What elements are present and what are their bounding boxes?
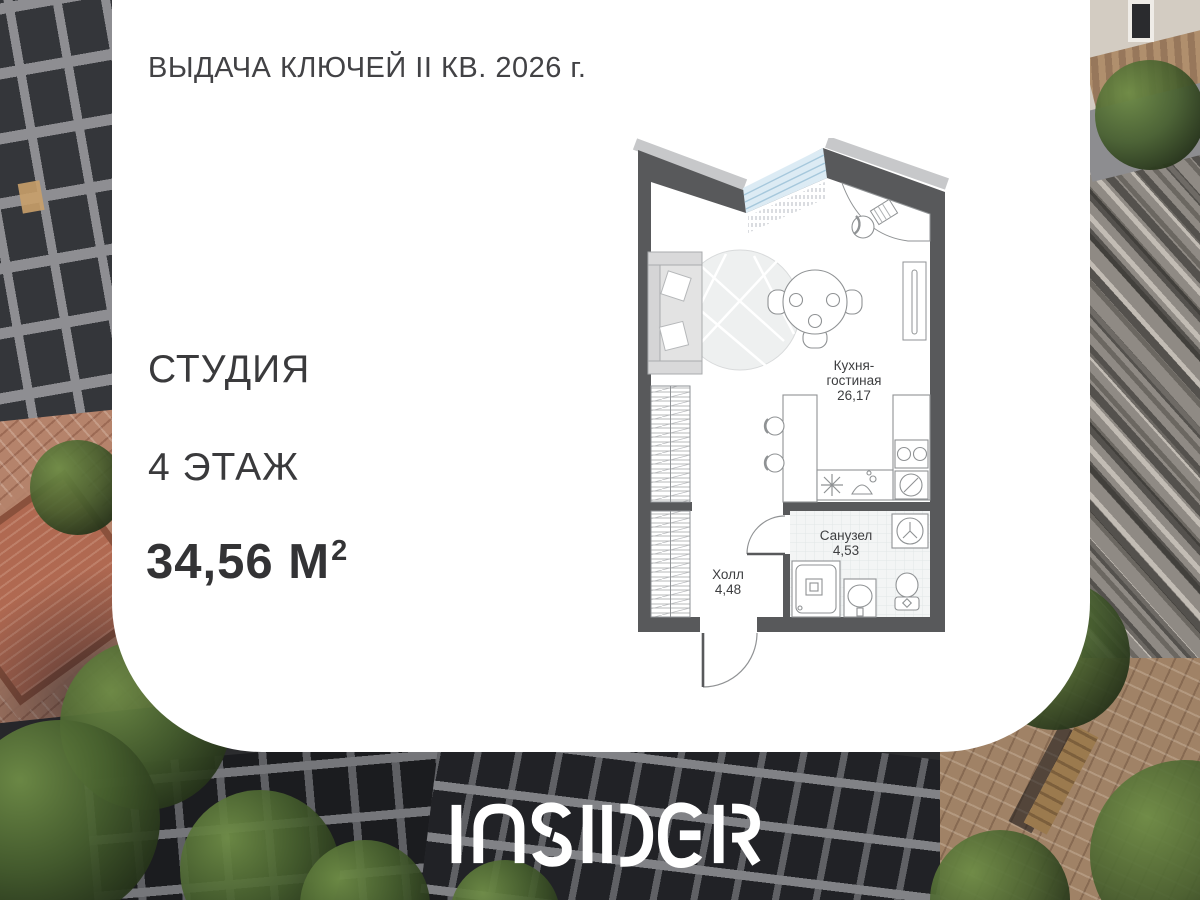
building-facade-right xyxy=(1082,128,1200,658)
shower xyxy=(792,561,840,617)
logo-letter-n xyxy=(478,809,519,864)
area-value: 34,56 xyxy=(146,535,274,589)
room-area-hall: 4,48 xyxy=(715,582,741,597)
logo-letter-d-bowl xyxy=(620,809,648,862)
terrace-door xyxy=(1128,0,1154,42)
tree xyxy=(30,440,125,535)
lit-window xyxy=(18,180,45,213)
toilet xyxy=(895,573,919,610)
room-label-kitchen-living-line1: Кухня- xyxy=(834,358,875,373)
wardrobes xyxy=(651,386,690,617)
sofa xyxy=(648,252,702,374)
unit-floor-label: 4 ЭТАЖ xyxy=(148,446,299,490)
tall-cabinet xyxy=(903,262,926,340)
floor-plan: Кухня- гостиная 26,17 Санузел 4,53 Холл … xyxy=(626,138,956,698)
handover-date-label: ВЫДАЧА КЛЮЧЕЙ II КВ. 2026 г. xyxy=(148,52,586,85)
room-label-kitchen-living-line2: гостиная xyxy=(827,373,882,388)
water-heater xyxy=(892,514,928,548)
promo-banner: ВЫДАЧА КЛЮЧЕЙ II КВ. 2026 г. СТУДИЯ 4 ЭТ… xyxy=(0,0,1200,900)
tree xyxy=(1095,60,1200,170)
bathroom-sink xyxy=(844,579,876,617)
logo-letter-r-leg xyxy=(742,840,757,863)
room-area-kitchen-living: 26,17 xyxy=(837,388,871,403)
room-label-hall: Холл xyxy=(712,567,744,582)
insider-logo xyxy=(448,800,766,868)
entry-door xyxy=(700,615,757,687)
listing-card: ВЫДАЧА КЛЮЧЕЙ II КВ. 2026 г. СТУДИЯ 4 ЭТ… xyxy=(112,0,1090,752)
area-unit: М xyxy=(288,535,330,589)
logo-letter-r-bowl xyxy=(732,809,755,838)
unit-area-label: 34,56 М2 xyxy=(146,534,348,590)
washing-machine xyxy=(895,471,928,499)
room-area-bathroom: 4,53 xyxy=(833,543,859,558)
room-label-bathroom: Санузел xyxy=(820,528,873,543)
logo-letter-s-bottom xyxy=(537,836,567,862)
area-power: 2 xyxy=(331,535,348,567)
kitchen-sink xyxy=(821,474,843,496)
unit-type-label: СТУДИЯ xyxy=(148,348,310,392)
logo-letter-s-top xyxy=(537,807,567,833)
